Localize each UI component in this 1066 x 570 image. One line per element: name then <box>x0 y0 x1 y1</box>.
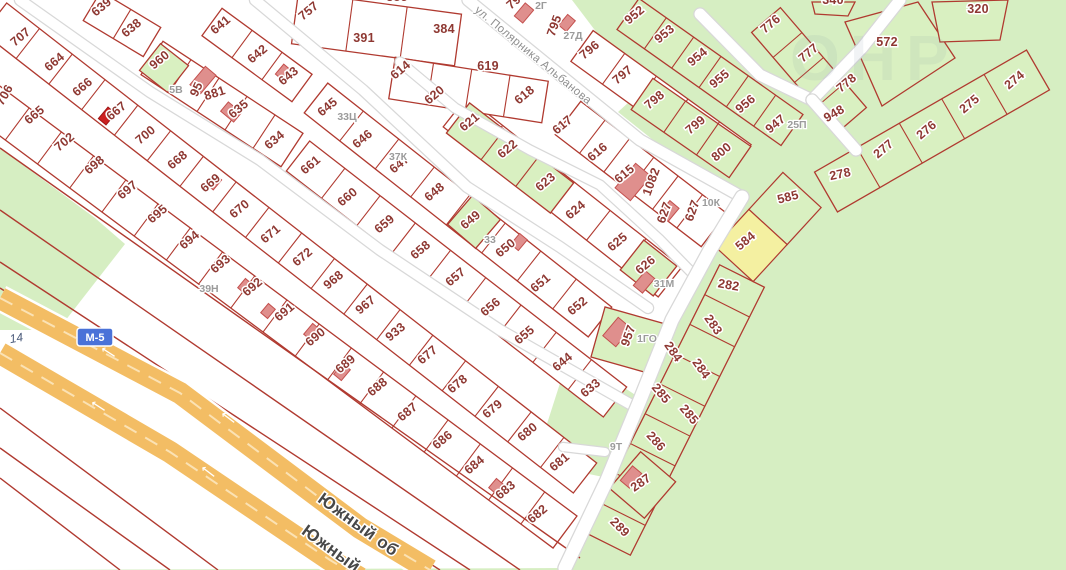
parcel-label[interactable]: 572 <box>876 35 897 49</box>
road[interactable] <box>563 447 605 452</box>
address-label[interactable]: 25П <box>787 119 806 131</box>
highway-badge-label: М-5 <box>86 332 105 344</box>
address-label[interactable]: 31М <box>654 278 675 290</box>
parcel-label[interactable]: 385 <box>386 0 407 4</box>
address-label[interactable]: 1ГО <box>637 333 657 345</box>
parcel-label[interactable]: 391 <box>353 31 374 45</box>
address-label[interactable]: 27Д <box>563 30 583 42</box>
address-label[interactable]: 9Т <box>610 441 623 453</box>
address-label[interactable]: 37К <box>389 151 408 163</box>
parcel-label[interactable]: 384 <box>433 22 454 36</box>
parcel-label[interactable]: 619 <box>477 59 498 73</box>
parcel-label[interactable]: 320 <box>967 2 988 16</box>
cadastral-map[interactable]: ⟵⟵⟵⟵ОНР639638707664666667700668669670671… <box>0 0 1066 570</box>
address-label[interactable]: 5В <box>169 84 183 96</box>
map-canvas[interactable]: ⟵⟵⟵⟵ОНР639638707664666667700668669670671… <box>0 0 1066 570</box>
address-label[interactable]: 39Н <box>199 283 218 295</box>
address-label[interactable]: 2Г <box>535 0 547 12</box>
watermark: ОНР <box>790 22 959 94</box>
km-marker[interactable]: 14 <box>9 330 25 346</box>
address-label[interactable]: 10К <box>702 197 721 209</box>
parcel-label[interactable]: 340 <box>822 0 843 7</box>
address-label[interactable]: 33 <box>484 234 496 246</box>
address-label[interactable]: 33Ц <box>337 111 357 123</box>
